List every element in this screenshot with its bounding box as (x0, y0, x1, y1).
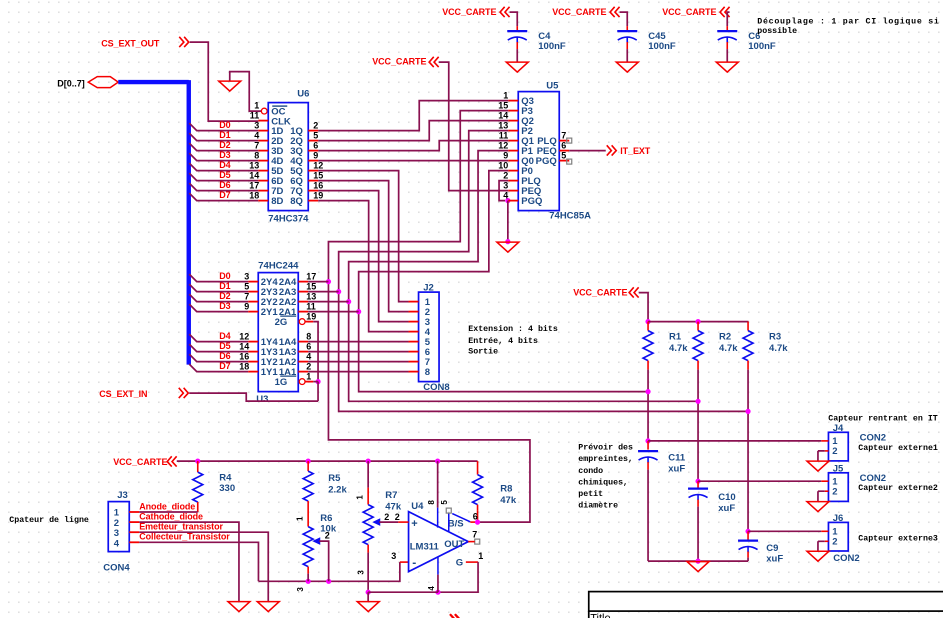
svg-text:13: 13 (306, 292, 316, 302)
svg-text:47k: 47k (385, 502, 402, 513)
svg-text:Anode_diode: Anode_diode (139, 502, 195, 512)
svg-text:xuF: xuF (718, 503, 735, 514)
svg-text:IT_EXT: IT_EXT (620, 146, 651, 156)
svg-text:2: 2 (325, 531, 330, 541)
svg-text:19: 19 (313, 191, 323, 201)
svg-text:3: 3 (356, 570, 365, 575)
svg-text:diamètre: diamètre (578, 501, 618, 511)
svg-text:4: 4 (114, 539, 120, 550)
svg-text:74HC244: 74HC244 (258, 261, 299, 272)
svg-text:1: 1 (478, 551, 483, 561)
svg-text:13: 13 (249, 161, 259, 171)
svg-text:D6: D6 (219, 351, 230, 361)
svg-text:5: 5 (561, 151, 566, 161)
svg-text:R8: R8 (500, 484, 512, 495)
svg-text:15: 15 (313, 171, 323, 181)
svg-text:D2: D2 (219, 140, 230, 150)
svg-text:4.7k: 4.7k (769, 343, 788, 354)
svg-text:5: 5 (313, 131, 318, 141)
svg-text:U4: U4 (411, 501, 424, 512)
svg-text:J3: J3 (117, 490, 128, 501)
svg-text:Entrée, 4 bits: Entrée, 4 bits (468, 336, 538, 346)
svg-text:C10: C10 (718, 492, 735, 503)
svg-text:C9: C9 (766, 543, 778, 554)
svg-text:1G: 1G (275, 377, 288, 388)
svg-text:R4: R4 (219, 473, 232, 484)
svg-text:R1: R1 (669, 332, 682, 343)
svg-text:D1: D1 (219, 281, 230, 291)
svg-text:R7: R7 (385, 490, 397, 501)
svg-text:10: 10 (498, 161, 508, 171)
svg-text:14: 14 (498, 111, 508, 121)
svg-text:1: 1 (306, 372, 311, 382)
svg-text:VCC_CARTE: VCC_CARTE (372, 57, 426, 67)
svg-text:3: 3 (503, 181, 508, 191)
svg-text:15: 15 (498, 101, 508, 111)
svg-text:CON2: CON2 (860, 432, 886, 443)
svg-text:74HC374: 74HC374 (268, 214, 309, 225)
svg-text:R3: R3 (769, 332, 781, 343)
svg-text:D0: D0 (219, 120, 230, 130)
svg-text:D5: D5 (219, 170, 230, 180)
svg-text:5: 5 (440, 500, 449, 505)
svg-text:R5: R5 (328, 473, 341, 484)
svg-text:2: 2 (832, 486, 837, 497)
svg-text:16: 16 (313, 181, 323, 191)
svg-text:15: 15 (306, 282, 316, 292)
svg-text:1: 1 (355, 495, 364, 500)
svg-text:xuF: xuF (668, 464, 685, 475)
svg-text:CON8: CON8 (423, 382, 449, 393)
svg-text:17: 17 (306, 272, 316, 282)
svg-text:1: 1 (295, 516, 304, 521)
svg-text:OUT: OUT (444, 539, 464, 550)
svg-text:5: 5 (244, 282, 249, 292)
svg-text:8Q: 8Q (290, 196, 303, 207)
svg-text:Capteur externe1: Capteur externe1 (858, 444, 938, 453)
svg-text:R2: R2 (719, 332, 731, 343)
svg-text:Découplage : 1 par CI logique: Découplage : 1 par CI logique si (757, 17, 939, 27)
svg-text:D3: D3 (219, 150, 230, 160)
svg-text:Extension : 4 bits: Extension : 4 bits (468, 324, 558, 334)
svg-text:possible: possible (757, 26, 797, 36)
svg-text:100nF: 100nF (648, 41, 676, 52)
svg-text:17: 17 (249, 181, 259, 191)
svg-text:2: 2 (832, 537, 837, 548)
svg-text:9: 9 (313, 151, 318, 161)
svg-text:2: 2 (395, 512, 400, 522)
svg-text:D7: D7 (219, 190, 230, 200)
svg-text:J5: J5 (833, 463, 844, 474)
svg-text:16: 16 (239, 352, 249, 362)
svg-text:19: 19 (306, 312, 316, 322)
svg-text:18: 18 (249, 191, 259, 201)
svg-text:Prévoir des: Prévoir des (578, 443, 633, 453)
svg-text:CS_EXT_OUT: CS_EXT_OUT (101, 39, 160, 49)
svg-text:U5: U5 (546, 81, 559, 92)
svg-text:U3: U3 (256, 394, 268, 405)
svg-text:VCC_CARTE: VCC_CARTE (662, 7, 716, 17)
svg-text:2: 2 (503, 171, 508, 181)
svg-text:D4: D4 (219, 160, 230, 170)
svg-text:2.2k: 2.2k (328, 485, 347, 496)
svg-text:2: 2 (384, 512, 389, 522)
svg-text:condo: condo (578, 466, 603, 476)
svg-text:1: 1 (254, 101, 259, 111)
svg-text:9: 9 (503, 151, 508, 161)
svg-text:D2: D2 (219, 291, 230, 301)
svg-text:B/S: B/S (448, 519, 464, 530)
svg-text:14: 14 (239, 342, 249, 352)
svg-text:4: 4 (427, 586, 436, 591)
svg-text:100nF: 100nF (748, 41, 776, 52)
svg-text:VCC_CARTE: VCC_CARTE (442, 7, 496, 17)
svg-text:U6: U6 (297, 89, 309, 100)
svg-text:47k: 47k (500, 495, 517, 506)
svg-text:PGQ: PGQ (536, 156, 557, 167)
svg-text:xuF: xuF (766, 554, 783, 565)
svg-text:4: 4 (503, 191, 508, 201)
svg-text:VCC_CARTE: VCC_CARTE (573, 288, 627, 298)
svg-text:D5: D5 (219, 341, 230, 351)
svg-text:100nF: 100nF (538, 41, 566, 52)
svg-text:R6: R6 (320, 513, 332, 524)
svg-text:2: 2 (313, 121, 318, 131)
svg-text:Capteur rentrant en IT: Capteur rentrant en IT (828, 415, 938, 424)
svg-text:CON2: CON2 (860, 473, 886, 484)
svg-text:empreintes,: empreintes, (578, 454, 633, 464)
svg-text:4: 4 (254, 131, 259, 141)
svg-text:2: 2 (306, 362, 311, 372)
svg-text:6: 6 (561, 141, 566, 151)
svg-text:4: 4 (306, 352, 311, 362)
svg-text:8D: 8D (271, 196, 283, 207)
svg-text:74HC85A: 74HC85A (549, 211, 591, 222)
svg-text:CON2: CON2 (833, 553, 859, 564)
svg-text:8: 8 (427, 500, 436, 505)
svg-text:VCC_CARTE: VCC_CARTE (113, 457, 167, 467)
svg-text:7: 7 (472, 530, 477, 540)
svg-text:14: 14 (249, 171, 259, 181)
svg-text:chimiques,: chimiques, (578, 477, 628, 487)
svg-text:12: 12 (498, 141, 508, 151)
svg-text:D6: D6 (219, 180, 230, 190)
svg-text:3: 3 (391, 551, 396, 561)
svg-text:8: 8 (425, 367, 430, 378)
svg-text:330: 330 (219, 483, 235, 494)
svg-text:J2: J2 (423, 283, 434, 294)
svg-text:12: 12 (239, 332, 249, 342)
svg-text:12: 12 (313, 161, 323, 171)
svg-text:9: 9 (244, 302, 249, 312)
svg-text:8: 8 (306, 332, 311, 342)
svg-text:D3: D3 (219, 301, 230, 311)
svg-text:D1: D1 (219, 130, 230, 140)
svg-text:7: 7 (244, 292, 249, 302)
svg-text:J6: J6 (833, 513, 844, 524)
svg-text:+: + (411, 518, 417, 530)
svg-text:Capteur externe2: Capteur externe2 (858, 484, 938, 493)
svg-text:-: - (412, 556, 416, 570)
svg-text:2G: 2G (275, 317, 288, 328)
svg-text:PGQ: PGQ (521, 196, 542, 207)
svg-text:LM311: LM311 (410, 542, 440, 553)
svg-text:Cathode_diode: Cathode_diode (139, 512, 203, 522)
svg-text:3: 3 (254, 121, 259, 131)
svg-text:petit: petit (578, 489, 603, 499)
svg-text:3: 3 (244, 272, 249, 282)
svg-text:J4: J4 (833, 423, 844, 434)
svg-text:4.7k: 4.7k (669, 343, 688, 354)
svg-text:Sortie: Sortie (468, 346, 498, 356)
svg-text:Title: Title (590, 613, 610, 618)
svg-text:1: 1 (503, 91, 508, 101)
svg-text:D4: D4 (219, 331, 230, 341)
svg-text:11: 11 (499, 131, 509, 141)
svg-text:D7: D7 (219, 361, 230, 371)
svg-text:6: 6 (313, 141, 318, 151)
svg-text:D0: D0 (219, 271, 230, 281)
svg-text:8: 8 (254, 151, 259, 161)
svg-text:2: 2 (832, 446, 837, 457)
svg-text:18: 18 (239, 362, 249, 372)
svg-text:11: 11 (306, 302, 316, 312)
svg-text:G: G (456, 558, 463, 569)
svg-text:3: 3 (296, 587, 305, 592)
svg-text:Emetteur_transistor: Emetteur_transistor (139, 522, 223, 532)
svg-text:CON4: CON4 (103, 563, 130, 574)
svg-text:Cpateur de ligne: Cpateur de ligne (9, 515, 89, 525)
svg-text:4.7k: 4.7k (719, 343, 738, 354)
svg-text:D[0..7]: D[0..7] (57, 79, 85, 89)
svg-text:Collecteur_Transistor: Collecteur_Transistor (139, 532, 230, 542)
svg-text:6: 6 (306, 342, 311, 352)
svg-text:13: 13 (498, 121, 508, 131)
svg-text:7: 7 (561, 131, 566, 141)
svg-text:CS_EXT_IN: CS_EXT_IN (99, 389, 147, 399)
svg-text:C11: C11 (668, 453, 686, 464)
svg-text:7: 7 (254, 141, 259, 151)
svg-text:Capteur externe3: Capteur externe3 (858, 534, 938, 543)
svg-text:VCC_CARTE: VCC_CARTE (552, 7, 606, 17)
svg-text:11: 11 (250, 111, 260, 121)
